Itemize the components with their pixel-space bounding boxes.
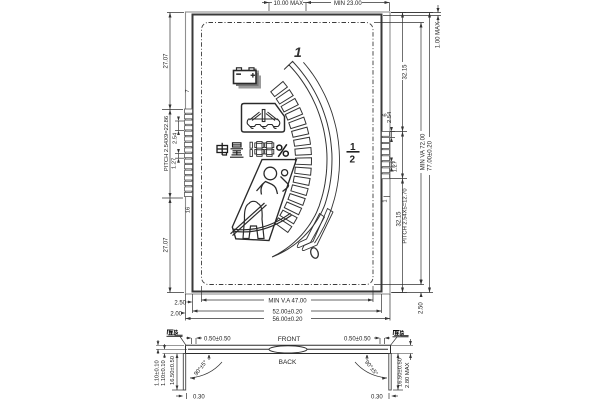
svg-text:2.54: 2.54 bbox=[173, 132, 179, 144]
svg-text:MIN VA 72.00: MIN VA 72.00 bbox=[421, 133, 427, 170]
svg-text:27.07: 27.07 bbox=[164, 237, 170, 253]
svg-text:PITCH 2.54X5=12.70: PITCH 2.54X5=12.70 bbox=[403, 188, 409, 243]
svg-text:BACK: BACK bbox=[279, 359, 297, 366]
svg-text:FRONT: FRONT bbox=[278, 336, 300, 343]
svg-text:1.10±0.10: 1.10±0.10 bbox=[155, 360, 161, 386]
svg-text:0.50±0.50: 0.50±0.50 bbox=[344, 337, 371, 343]
svg-text:52.00±0.20: 52.00±0.20 bbox=[273, 309, 304, 315]
svg-text:1.10±0.10: 1.10±0.10 bbox=[161, 360, 167, 386]
svg-text:2.80 MAX: 2.80 MAX bbox=[405, 362, 411, 388]
svg-text:32.15: 32.15 bbox=[397, 211, 403, 227]
svg-text:MIN 23.00: MIN 23.00 bbox=[334, 1, 362, 7]
svg-text:10.00 MAX: 10.00 MAX bbox=[274, 1, 304, 7]
svg-text:2: 2 bbox=[350, 155, 356, 166]
svg-text:16: 16 bbox=[186, 207, 192, 213]
svg-text:1: 1 bbox=[294, 44, 302, 60]
svg-text:16.50±0.50: 16.50±0.50 bbox=[170, 356, 176, 385]
svg-text:1.00 MAX: 1.00 MAX bbox=[436, 22, 442, 48]
svg-text:2.00: 2.00 bbox=[170, 312, 182, 318]
svg-text:1: 1 bbox=[383, 199, 389, 202]
svg-text:7: 7 bbox=[185, 89, 191, 92]
svg-text:0.50±0.50: 0.50±0.50 bbox=[204, 337, 231, 343]
svg-text:2.54: 2.54 bbox=[387, 111, 393, 123]
svg-text:16.50±0.50: 16.50±0.50 bbox=[398, 358, 404, 387]
svg-text:77.00±0.20: 77.00±0.20 bbox=[428, 140, 434, 171]
svg-text:27.07: 27.07 bbox=[164, 53, 170, 69]
svg-text:56.00±0.20: 56.00±0.20 bbox=[273, 317, 304, 323]
svg-text:0.30: 0.30 bbox=[371, 395, 383, 400]
svg-text:0.30: 0.30 bbox=[193, 395, 205, 400]
svg-text:PITCH 2.54X9=22.86: PITCH 2.54X9=22.86 bbox=[164, 116, 170, 171]
svg-text:2.50: 2.50 bbox=[419, 302, 425, 314]
svg-text:2.50: 2.50 bbox=[174, 301, 186, 307]
svg-text:1.27: 1.27 bbox=[393, 161, 399, 172]
svg-text:1.27: 1.27 bbox=[172, 158, 178, 169]
svg-text:MIN V.A 47.00: MIN V.A 47.00 bbox=[268, 298, 307, 304]
svg-text:32.15: 32.15 bbox=[403, 64, 409, 80]
